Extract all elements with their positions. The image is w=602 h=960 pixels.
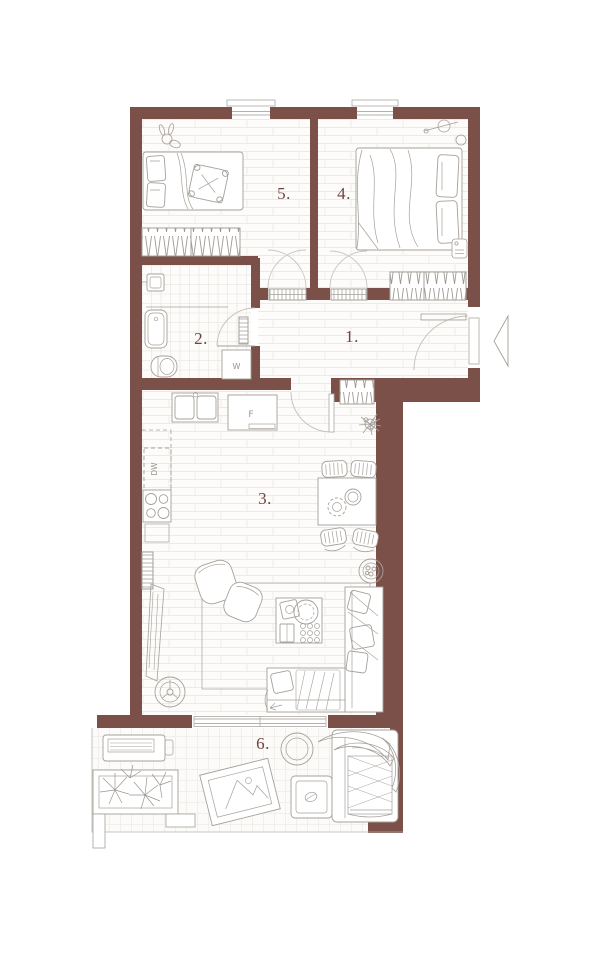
room2-number: 2.	[194, 329, 208, 348]
floor-plan: W	[0, 0, 602, 960]
dishwasher-label: DW	[150, 462, 159, 476]
doormat-room5	[269, 289, 306, 300]
window-room4	[352, 100, 398, 119]
kitchen-living-floor	[142, 390, 376, 715]
wardrobe-room5	[142, 228, 240, 256]
wall-balcony-top-right	[328, 715, 403, 728]
ac-unit	[103, 735, 173, 761]
washing-machine: W	[222, 350, 251, 379]
wardrobe-hallway	[340, 380, 374, 404]
wall-bathroom-right-upper	[251, 258, 260, 308]
bathtub	[145, 310, 167, 348]
room3-number: 3.	[258, 489, 272, 508]
wall-bathroom-top	[130, 256, 258, 265]
window-balcony-door	[192, 715, 328, 728]
floor-plan-page: W	[0, 0, 602, 960]
toilet	[151, 356, 177, 377]
dining-chair	[322, 460, 348, 477]
entrance-door-leaf	[469, 318, 479, 364]
wall-left	[130, 119, 142, 718]
hall-kitchen-passage-floor	[291, 378, 331, 390]
coffee-table	[276, 598, 322, 643]
wall-top-3	[393, 107, 480, 119]
wall-bathroom-right-lower	[251, 346, 260, 378]
dining-table	[318, 478, 376, 525]
wardrobe-room4	[390, 272, 466, 300]
hallway-floor	[258, 300, 468, 382]
washing-machine-label: W	[233, 362, 241, 371]
doormat-room4	[331, 289, 367, 300]
room4-number: 4.	[337, 184, 351, 203]
window-room5	[227, 100, 275, 119]
wall-bathroom-bottom	[130, 378, 291, 390]
stove	[143, 490, 171, 522]
wall-bedrooms-bottom-2	[306, 288, 330, 300]
dining-chair	[350, 460, 376, 478]
wall-top-2	[270, 107, 357, 119]
wall-room5-room4-divider	[310, 119, 318, 288]
entrance-direction-triangle-icon	[494, 316, 508, 366]
wall-balcony-top-left	[97, 715, 192, 728]
fridge-label: F	[248, 410, 253, 420]
side-table	[291, 776, 332, 818]
towel-radiator	[239, 317, 248, 344]
kitchen-sink-unit	[172, 392, 218, 422]
single-bed	[143, 152, 243, 210]
wall-top-1	[130, 107, 232, 119]
room5-number: 5.	[277, 184, 291, 203]
kitchen-radiator	[142, 552, 153, 589]
wall-thermostat-icon	[452, 239, 467, 258]
room1-number: 1.	[345, 327, 359, 346]
wall-right-upper	[468, 119, 480, 307]
room6-number: 6.	[256, 734, 270, 753]
fridge: F	[228, 395, 277, 430]
double-bed	[356, 148, 462, 250]
